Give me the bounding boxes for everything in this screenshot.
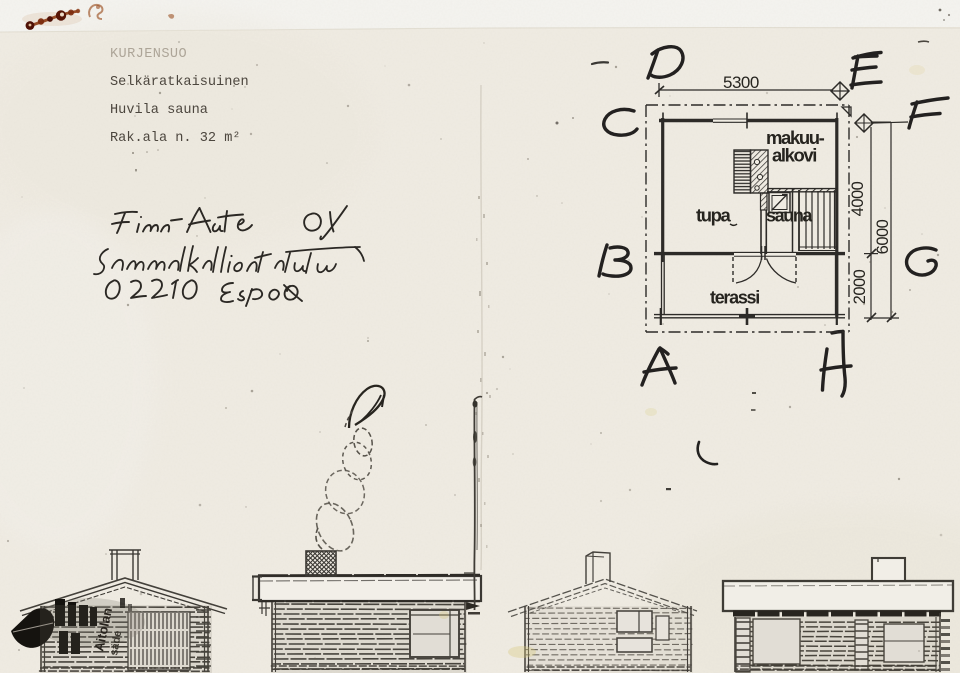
svg-text:KURJENSUO: KURJENSUO	[110, 47, 187, 62]
svg-text:2000: 2000	[851, 269, 869, 304]
svg-text:terassi: terassi	[710, 288, 759, 308]
svg-text:alkovi: alkovi	[772, 145, 816, 166]
svg-text:sauna: sauna	[766, 206, 813, 226]
svg-text:Huvila sauna: Huvila sauna	[110, 103, 208, 118]
svg-text:4000: 4000	[849, 181, 867, 216]
svg-text:Selkäratkaisuinen: Selkäratkaisuinen	[110, 75, 249, 90]
svg-text:5300: 5300	[723, 73, 759, 92]
svg-text:tupa: tupa	[696, 205, 732, 226]
svg-text:6000: 6000	[874, 219, 892, 254]
svg-text:Rak.ala n. 32 m²: Rak.ala n. 32 m²	[110, 131, 241, 146]
